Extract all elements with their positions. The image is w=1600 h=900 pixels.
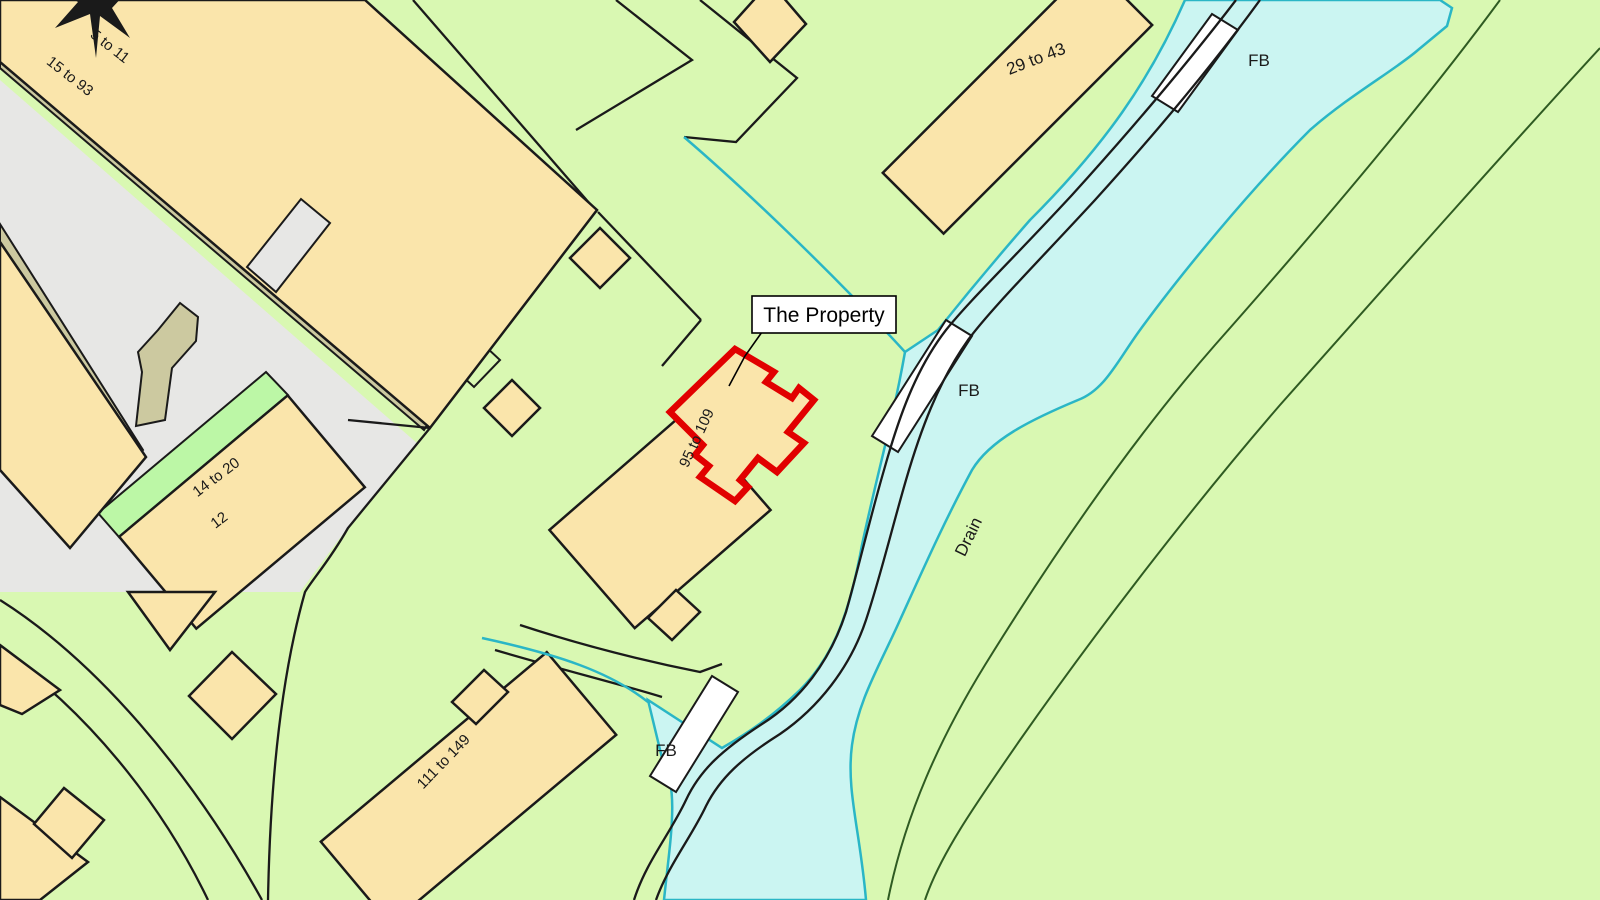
label-fb-middle: FB	[958, 381, 980, 400]
site-plan-map: 5 to 11 15 to 93 29 to 43 95 to 109 14 t…	[0, 0, 1600, 900]
map-canvas: 5 to 11 15 to 93 29 to 43 95 to 109 14 t…	[0, 0, 1600, 900]
label-fb-top: FB	[1248, 51, 1270, 70]
label-fb-bottom: FB	[655, 741, 677, 760]
callout-text: The Property	[763, 304, 885, 327]
